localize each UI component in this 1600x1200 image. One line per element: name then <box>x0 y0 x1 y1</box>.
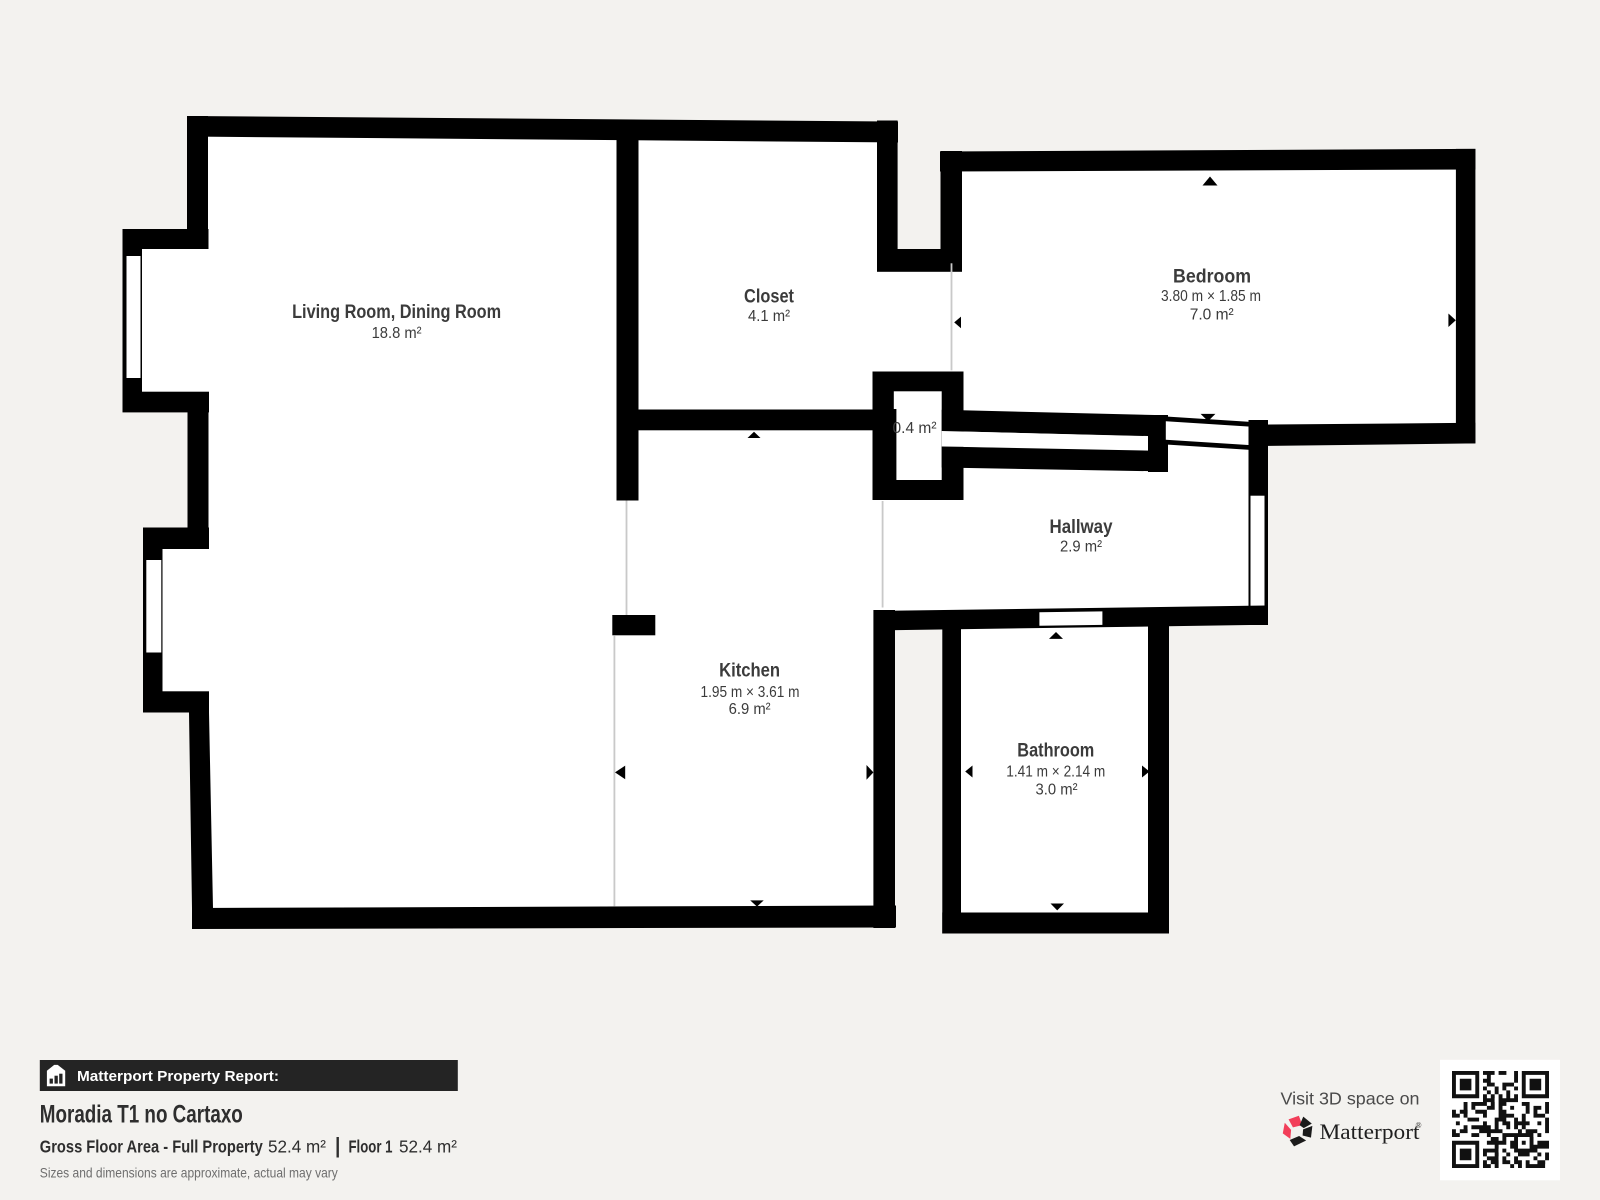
svg-text:Hallway: Hallway <box>1050 517 1113 538</box>
svg-text:Matterport: Matterport <box>1320 1119 1421 1144</box>
svg-text:Gross Floor Area - Full Proper: Gross Floor Area - Full Property <box>40 1137 263 1157</box>
svg-text:1.41 m × 2.14 m: 1.41 m × 2.14 m <box>1006 764 1105 781</box>
svg-text:®: ® <box>1416 1121 1422 1130</box>
svg-text:Bedroom: Bedroom <box>1173 267 1251 288</box>
svg-text:6.9 m²: 6.9 m² <box>729 701 772 718</box>
svg-text:18.8 m²: 18.8 m² <box>372 325 423 342</box>
svg-text:52.4 m²: 52.4 m² <box>399 1137 457 1157</box>
svg-text:3.0 m²: 3.0 m² <box>1036 782 1079 799</box>
svg-text:Living Room, Dining Room: Living Room, Dining Room <box>292 302 501 323</box>
svg-text:Bathroom: Bathroom <box>1017 741 1094 762</box>
svg-text:0.4 m²: 0.4 m² <box>893 420 938 437</box>
svg-text:Moradia T1 no Cartaxo: Moradia T1 no Cartaxo <box>40 1101 243 1129</box>
svg-text:1.95 m × 3.61 m: 1.95 m × 3.61 m <box>701 684 800 701</box>
svg-text:Closet: Closet <box>744 287 795 308</box>
svg-text:Sizes and dimensions are appro: Sizes and dimensions are approximate, ac… <box>40 1166 338 1181</box>
svg-text:Kitchen: Kitchen <box>719 661 780 682</box>
svg-text:4.1 m²: 4.1 m² <box>748 308 791 325</box>
svg-text:52.4 m²: 52.4 m² <box>268 1137 326 1157</box>
svg-text:7.0 m²: 7.0 m² <box>1190 307 1235 324</box>
svg-text:3.80 m × 1.85 m: 3.80 m × 1.85 m <box>1161 288 1261 305</box>
svg-text:2.9 m²: 2.9 m² <box>1060 539 1103 556</box>
svg-text:Matterport Property Report:: Matterport Property Report: <box>77 1069 279 1085</box>
svg-text:Floor 1: Floor 1 <box>349 1137 393 1157</box>
svg-text:Visit 3D space on: Visit 3D space on <box>1281 1089 1420 1109</box>
